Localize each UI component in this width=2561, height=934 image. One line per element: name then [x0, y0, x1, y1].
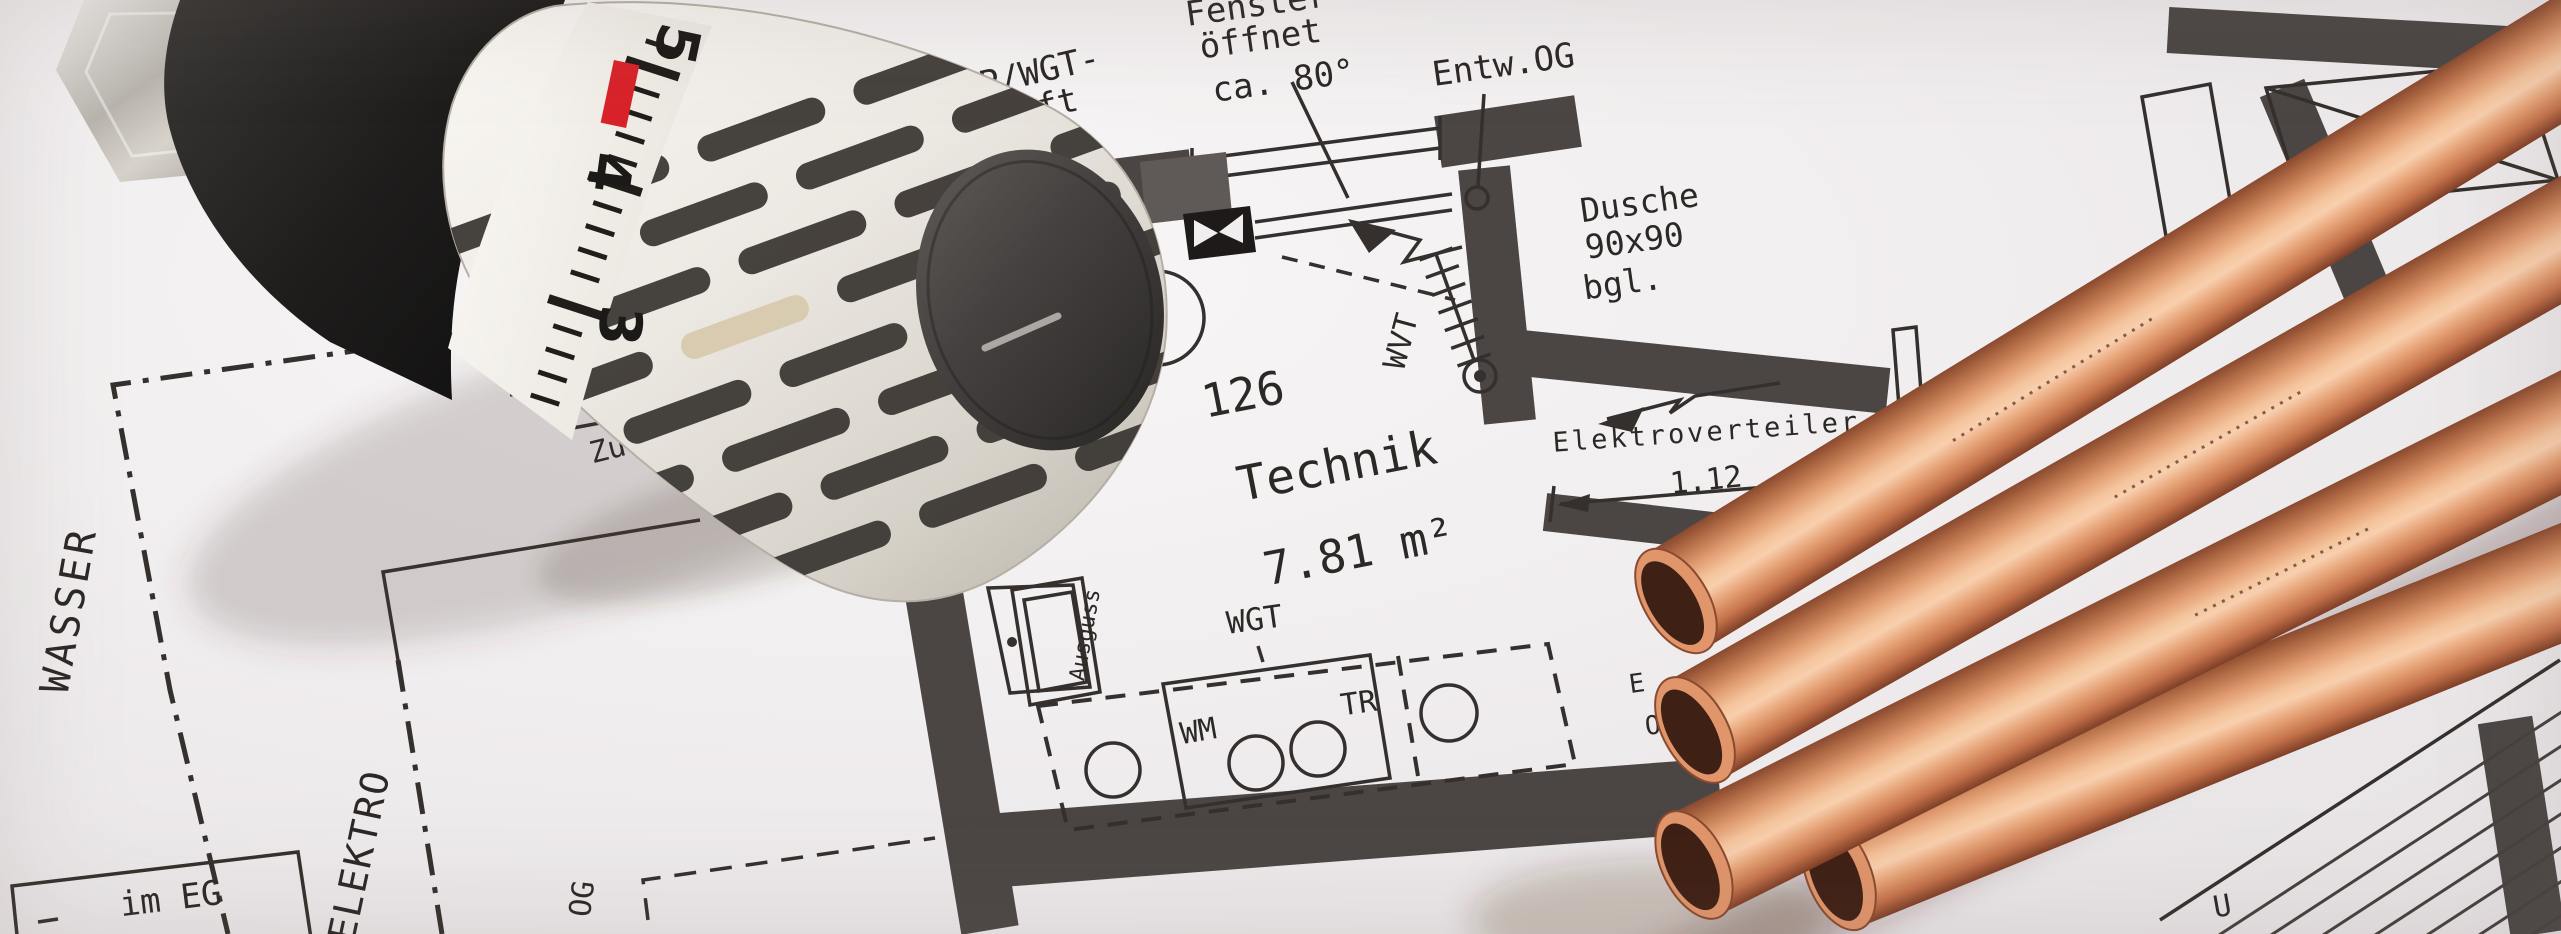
wall-bottom [975, 795, 1720, 852]
label-tr: TR [1338, 684, 1380, 724]
wvt-target-dot [1474, 370, 1486, 382]
label-og: OG [563, 879, 602, 919]
label-room-number: 126 [1197, 360, 1289, 429]
label-wgt: WGT [1224, 598, 1284, 641]
wall-dusche-left [1484, 168, 1510, 422]
duct-line-1 [1255, 194, 1452, 222]
label-wvt: WVT [1377, 310, 1426, 373]
label-room-name: Technik [1232, 419, 1441, 513]
wgt-leader [1258, 646, 1263, 662]
wgt-divider-dashed [1398, 656, 1418, 776]
wall-bottomright [2505, 720, 2538, 934]
label-elektro: ELEKTRO [320, 766, 399, 934]
label-fragment-e: E [1627, 668, 1647, 700]
photo-canvas: Fenster öffnet ca. 80° Entw.OG Dusche 90… [0, 0, 2561, 934]
appliance-circle-4 [1421, 685, 1477, 741]
label-room-area: 7.81 m² [1259, 506, 1460, 596]
label-fragment-u: U [2210, 888, 2234, 926]
duct-dashed-line [1282, 257, 1455, 300]
window-line-inner [1192, 148, 1440, 180]
appliance-circle-1 [1086, 743, 1140, 797]
im-eg-dash [38, 919, 58, 922]
label-dim-112: 1.12 [1668, 459, 1744, 501]
label-wm: WM [1178, 711, 1220, 752]
label-ausguss: Ausguss [1065, 587, 1106, 683]
thermostat-valve: 5 4 3 [56, 0, 1363, 720]
scene-photo: Fenster öffnet ca. 80° Entw.OG Dusche 90… [0, 0, 2561, 934]
appliance-circle-3 [1291, 722, 1345, 776]
damper-box [1183, 206, 1256, 260]
elektro-dashdot-line [398, 660, 442, 934]
label-wasser: WASSER [32, 523, 107, 697]
wall-dusche-bottom [1512, 352, 1888, 391]
og-dashed-line [643, 838, 935, 920]
valve-number-3: 3 [584, 303, 655, 349]
label-im-eg: im EG [117, 873, 223, 925]
wvt-arrowhead-icon [1348, 219, 1396, 253]
door-hinge-dot [1007, 637, 1017, 647]
appliance-circle-2 [1229, 736, 1283, 790]
wall-top-right [1438, 121, 1578, 142]
label-entw-og: Entw.OG [1430, 35, 1577, 95]
